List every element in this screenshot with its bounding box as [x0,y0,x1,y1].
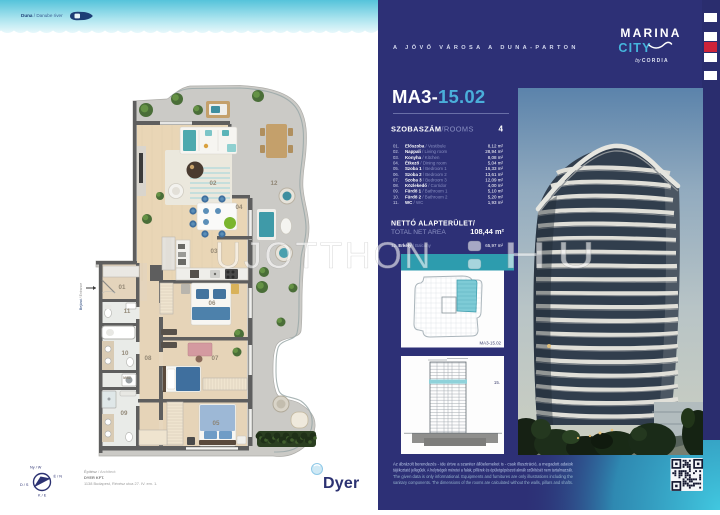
svg-text:10: 10 [122,350,129,357]
svg-text:06.: 06. [393,172,399,177]
svg-text:SZOBASZÁM/ROOMS: SZOBASZÁM/ROOMS [391,125,474,134]
svg-text:DYER KFT.: DYER KFT. [84,475,104,480]
svg-text:5,20 m²: 5,20 m² [488,194,504,199]
svg-text:09.: 09. [393,189,399,194]
svg-text:UJOTTHON: UJOTTHON [215,235,433,276]
svg-text:1,93 m²: 1,93 m² [488,200,504,205]
svg-text:Dyer: Dyer [323,475,359,492]
svg-text:5,04 m²: 5,04 m² [488,160,504,165]
svg-text:MA3-15.02: MA3-15.02 [392,86,485,107]
svg-text:Szoba 1 / Bedroom 1: Szoba 1 / Bedroom 1 [405,166,447,171]
svg-text:08.: 08. [393,183,399,188]
svg-text:tájékoztató jellegűek. A helyi: tájékoztató jellegűek. A helyiségek mére… [393,468,573,473]
svg-text:Szoba 3 / Bedroom 3: Szoba 3 / Bedroom 3 [405,177,447,182]
svg-text:10.: 10. [393,194,399,199]
svg-text:06: 06 [209,300,216,307]
svg-text:8,12 m²: 8,12 m² [488,144,504,149]
svg-text:02: 02 [210,180,217,187]
svg-text:É / N: É / N [54,474,63,479]
svg-text:09: 09 [121,410,128,417]
svg-text:Étkező / Dining room: Étkező / Dining room [405,160,447,165]
svg-text:MA3-15.02: MA3-15.02 [480,341,502,346]
svg-text:Előszoba / Vestibule: Előszoba / Vestibule [405,144,446,149]
svg-text:4,00 m²: 4,00 m² [488,183,504,188]
svg-text:108,44 m²: 108,44 m² [470,227,504,236]
svg-text:Ny / W: Ny / W [30,466,42,470]
svg-text:8,08 m²: 8,08 m² [488,155,504,160]
svg-text:Konyha / Kitchen: Konyha / Kitchen [405,155,440,160]
svg-text:by CORDIA: by CORDIA [635,58,669,64]
svg-text:Építész / Architect:: Építész / Architect: [84,469,116,474]
svg-text:03.: 03. [393,155,399,160]
svg-text:1138 Budapest, Révész utca 27.: 1138 Budapest, Révész utca 27. IV. em. 1… [84,481,157,486]
svg-text:U: U [557,235,595,276]
svg-text:4: 4 [499,125,504,134]
svg-text:08: 08 [145,355,152,362]
svg-text:MARINA: MARINA [620,26,681,40]
svg-text:Az ábrázolt berendezés - ide é: Az ábrázolt berendezés - ide értve a sza… [393,462,574,467]
svg-text:Fürdő 2 / Bathroom 2: Fürdő 2 / Bathroom 2 [405,194,448,199]
svg-text:11.: 11. [393,200,399,205]
svg-text:Szoba 2 / Bedroom 2: Szoba 2 / Bedroom 2 [405,172,447,177]
svg-text:04.: 04. [393,160,399,165]
svg-text:5,10 m²: 5,10 m² [488,189,504,194]
svg-text:M/SZ: M/SZ [123,376,131,380]
svg-text:WC / WC: WC / WC [405,200,423,205]
svg-text:D / S: D / S [20,483,29,487]
svg-text:Fürdő 1 / Bathroom 1: Fürdő 1 / Bathroom 1 [405,189,448,194]
svg-text:04: 04 [236,204,243,211]
svg-text:07.: 07. [393,177,399,182]
svg-text:01.: 01. [393,144,399,149]
svg-text:13,61 m²: 13,61 m² [485,172,503,177]
svg-text:05.: 05. [393,166,399,171]
svg-text:11: 11 [124,308,131,315]
svg-text:K / E: K / E [38,494,47,498]
svg-text:Duna / Danube river: Duna / Danube river [21,13,63,18]
svg-text:The given data is only informa: The given data is only informational. Eq… [393,474,574,479]
svg-text:05: 05 [213,420,220,427]
svg-text:28,94 m²: 28,94 m² [485,149,503,154]
svg-text:02.: 02. [393,149,399,154]
svg-text:CITY: CITY [618,41,651,55]
svg-text:NETTÓ ALAPTERÜLET/: NETTÓ ALAPTERÜLET/ [391,219,475,228]
svg-text:Bejárat / Entrance: Bejárat / Entrance [79,283,83,310]
svg-text:65,97 m²: 65,97 m² [485,243,503,248]
svg-text:Közlekedő / Corridor: Közlekedő / Corridor [405,183,447,188]
svg-text:12,09 m²: 12,09 m² [485,177,503,182]
svg-text:12: 12 [271,180,278,187]
svg-text:H: H [503,235,547,276]
svg-text:16,33 m²: 16,33 m² [485,166,503,171]
svg-text:A JÖVŐ VÁROSA A DUNA-PARTON: A JÖVŐ VÁROSA A DUNA-PARTON [393,44,579,51]
svg-text:01: 01 [119,284,126,291]
svg-text:07: 07 [212,355,219,362]
svg-text:15.: 15. [494,380,500,385]
svg-text:Nappali / Living room: Nappali / Living room [405,149,448,154]
svg-text:sanitary components. The dimen: sanitary components. The dimensions of t… [393,480,573,485]
